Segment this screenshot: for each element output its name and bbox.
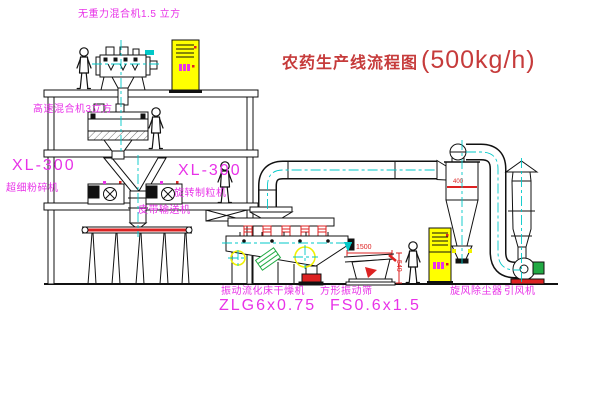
title-capacity: (500kg/h) bbox=[421, 46, 536, 75]
control-cabinet-1 bbox=[169, 40, 202, 93]
label-dryer-model: ZLG6x0.75 bbox=[219, 298, 316, 314]
spring-mounts bbox=[244, 226, 326, 236]
dryer-exhaust-duct bbox=[258, 161, 437, 209]
page-title: 农药生产线流程图 (500kg/h) bbox=[282, 46, 536, 75]
label-sieve: 方形振动筛 bbox=[320, 287, 373, 297]
fluid-bed-dryer bbox=[226, 207, 354, 285]
pulverizer-machine bbox=[88, 181, 124, 204]
label-granulator-model: XL-300 bbox=[178, 163, 242, 179]
vibrating-sieve bbox=[344, 250, 402, 285]
cyan-fitting bbox=[145, 50, 154, 55]
label-fan: 引风机 bbox=[504, 287, 536, 297]
person-icon bbox=[149, 108, 163, 149]
label-cyclone: 旋风除尘器 bbox=[450, 287, 503, 297]
label-weightless-mixer: 无重力混合机1.5 立方 bbox=[78, 10, 181, 20]
label-dryer: 振动流化床干燥机 bbox=[221, 287, 305, 297]
belt-conveyor bbox=[82, 227, 192, 284]
person-icon bbox=[77, 48, 91, 89]
fan-motor bbox=[533, 262, 544, 274]
dim-sieve-length: 1500 bbox=[356, 244, 372, 251]
label-high-speed-mixer: 高速混合机3立方 bbox=[33, 105, 113, 115]
label-sieve-model: FS0.6x1.5 bbox=[330, 298, 421, 314]
induced-draft-fan bbox=[511, 258, 544, 284]
title-text: 农药生产线流程图 bbox=[282, 49, 418, 73]
label-belt-conveyor: 皮带输送机 bbox=[138, 206, 191, 216]
dim-sieve-height: 540 bbox=[395, 260, 402, 272]
label-granulator: 旋转制粒机 bbox=[174, 189, 227, 199]
label-pulverizer-model: XL-300 bbox=[12, 158, 76, 174]
diagram-canvas: 农药生产线流程图 (500kg/h) 无重力混合机1.5 立方 高速混合机3立方… bbox=[0, 0, 600, 403]
control-cabinet-2 bbox=[427, 228, 453, 284]
fan-base bbox=[511, 279, 544, 284]
person-icon bbox=[406, 242, 420, 283]
label-pulverizer: 超细粉碎机 bbox=[6, 184, 59, 194]
dim-cyclone-inlet: 400 bbox=[453, 179, 463, 185]
